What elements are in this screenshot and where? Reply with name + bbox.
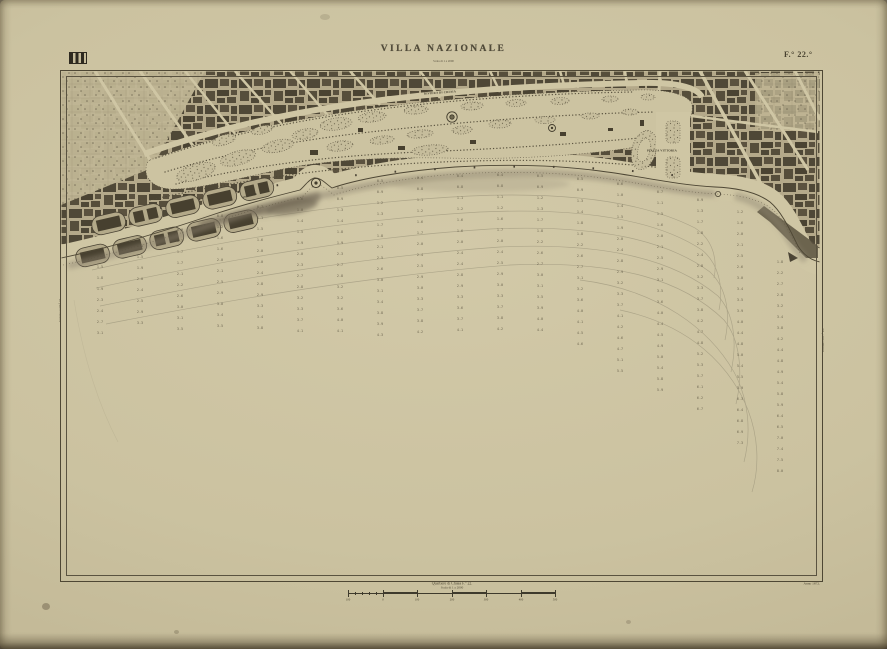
- scale-bar-tick-label: 400: [518, 599, 523, 602]
- labels-layer: PIAZZA VITTORIARIVIERA DI CHIAIASPIAGGIA: [0, 0, 887, 649]
- map-label: PIAZZA VITTORIA: [647, 150, 677, 153]
- anno-label: Anno 1872.: [785, 582, 820, 585]
- scale-bar-segment: [383, 592, 418, 595]
- scale-bar-tick: [348, 590, 349, 597]
- scale-bar-tick: [486, 590, 487, 597]
- left-join-label: Unione col F.° 21.: [59, 298, 62, 322]
- map-label: RIVIERA DI CHIAIA: [424, 90, 456, 95]
- scale-bar-tick: [555, 590, 556, 597]
- scale-bar-segment: [452, 592, 487, 595]
- scale-bar-tick-label: 300: [484, 599, 489, 602]
- scale-bar-tick-label: 200: [449, 599, 454, 602]
- scale-bar-tick-label: 100: [346, 599, 351, 602]
- scale-bar-minor-tick: [376, 592, 377, 595]
- scale-bar-minor-tick: [362, 592, 363, 595]
- scale-bar-tick-label: 0: [382, 599, 384, 602]
- scale-bar: 1000100200300400500: [348, 589, 562, 601]
- map-label: SPIAGGIA: [242, 193, 257, 199]
- scale-bar-minor-tick: [355, 592, 356, 595]
- scale-bar-minor-tick: [369, 592, 370, 595]
- scale-bar-tick-label: 100: [415, 599, 420, 602]
- scale-bar-segment: [521, 592, 556, 595]
- scale-bar-tick: [417, 590, 418, 597]
- scale-bar-tick-label: 500: [553, 599, 558, 602]
- footer-caption-line1: Quartiere di Chiaia F.° 22.: [203, 581, 700, 585]
- photographed-map-sheet: VILLA NAZIONALE Scala di 1 a 2000 F.° 22…: [0, 0, 887, 649]
- right-join-label: Unione col F.° 23.: [822, 328, 825, 352]
